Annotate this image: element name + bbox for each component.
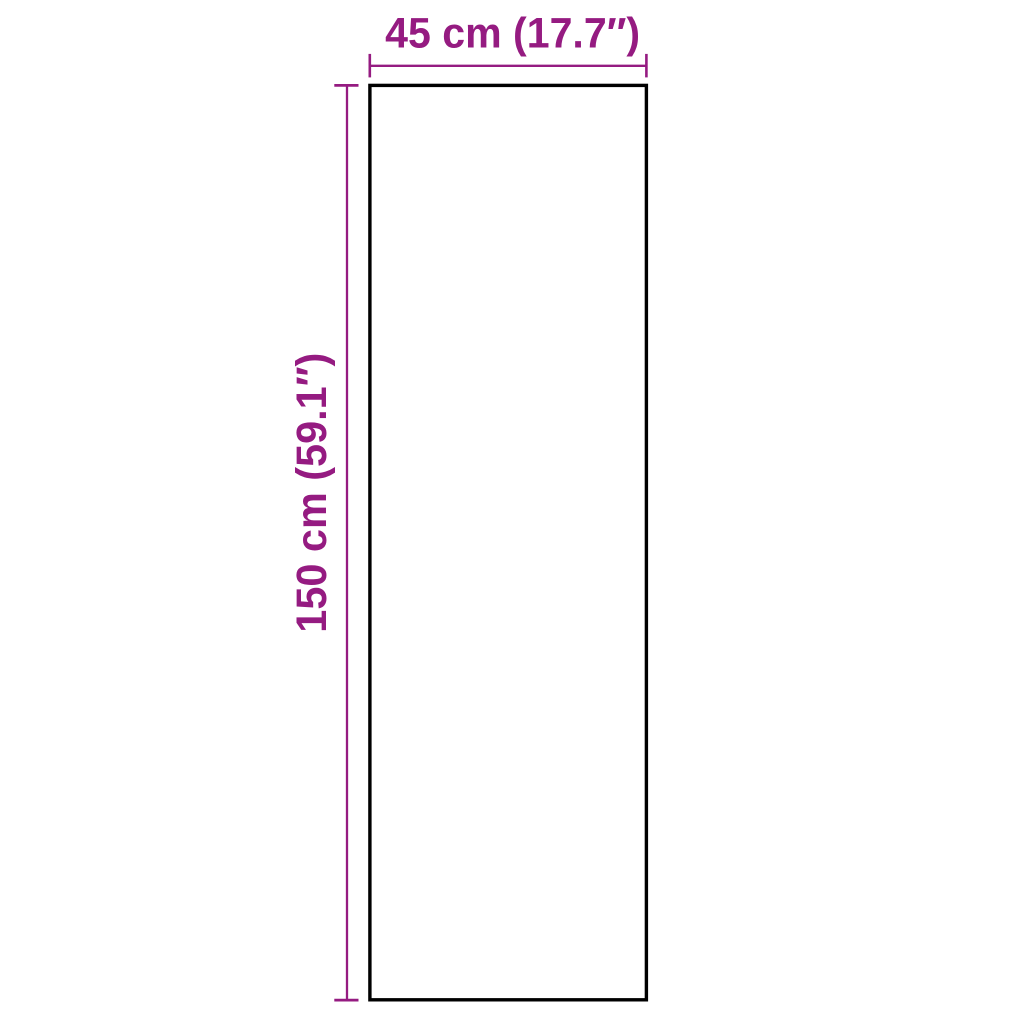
svg-text:45 cm (17.7″): 45 cm (17.7″) <box>385 10 640 58</box>
svg-text:150 cm (59.1″): 150 cm (59.1″) <box>288 353 336 633</box>
